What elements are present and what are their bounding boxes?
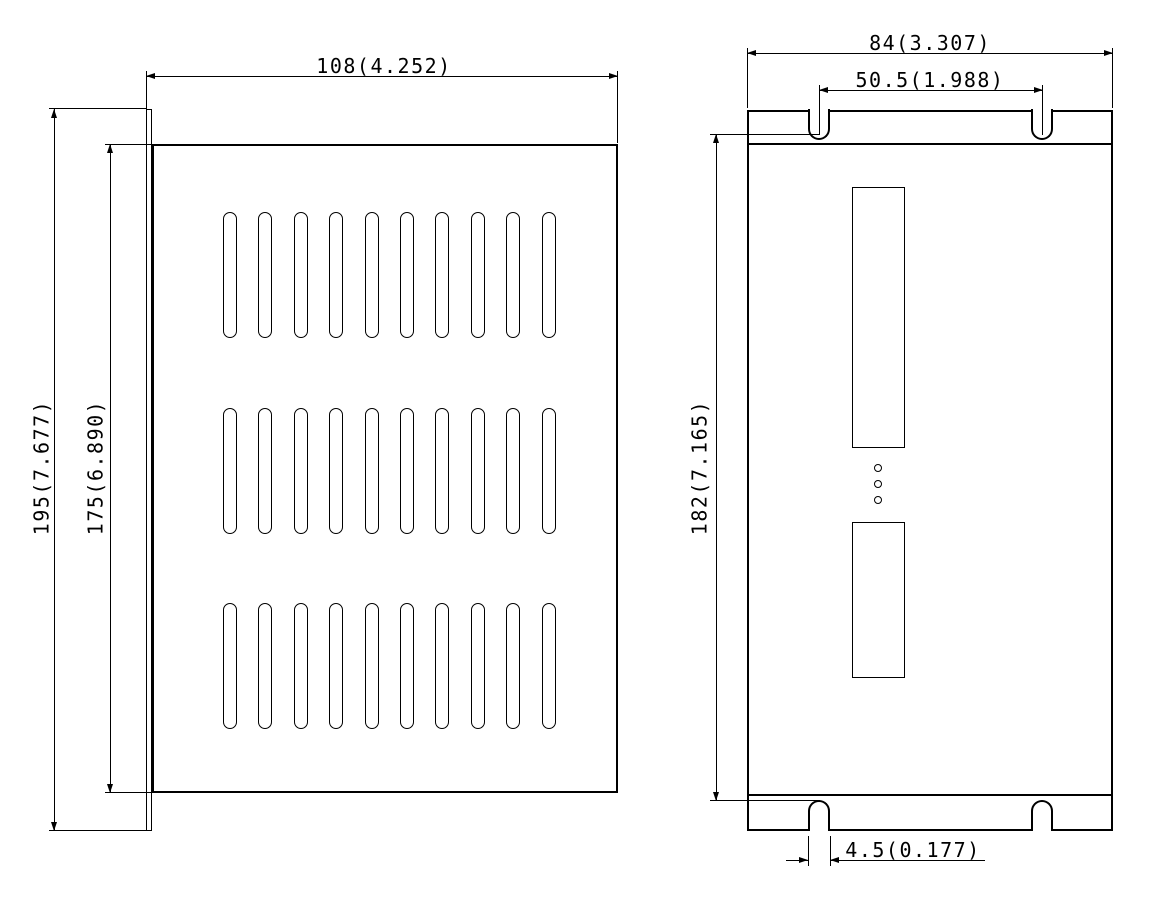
vent-slot [506, 603, 520, 729]
dim-arrow [713, 792, 719, 801]
dim-extension [617, 71, 618, 143]
vent-slot [365, 212, 379, 338]
dim-arrow [107, 144, 113, 153]
vent-slot [542, 212, 556, 338]
dim-arrow [51, 822, 57, 831]
dim-arrow [713, 134, 719, 143]
led-hole [874, 464, 882, 472]
dim-extension [710, 134, 820, 135]
vent-slot [223, 212, 237, 338]
vent-slot [329, 212, 343, 338]
mounting-notch [808, 800, 830, 831]
dim-arrow [799, 857, 808, 863]
dim-arrow [146, 73, 155, 79]
dim-arrow [1034, 87, 1043, 93]
dim-label-outer-height: 195(7.677) [33, 393, 52, 543]
vent-slot [294, 603, 308, 729]
connector-block [852, 522, 905, 678]
dim-arrow [1104, 50, 1113, 56]
dim-arrow [609, 73, 618, 79]
dim-label-body-height: 175(6.890) [87, 393, 106, 543]
dim-extension [747, 48, 748, 108]
vent-slot [400, 603, 414, 729]
dim-label-slot-width: 4.5(0.177) [838, 841, 988, 860]
vent-slot [542, 603, 556, 729]
vent-slot [471, 603, 485, 729]
vent-slot [365, 408, 379, 534]
dim-label-slot-spacing: 50.5(1.988) [845, 71, 1015, 90]
dim-line [110, 144, 111, 793]
vent-slot [258, 603, 272, 729]
vent-slot [400, 408, 414, 534]
vent-slot [506, 212, 520, 338]
vent-slot [435, 603, 449, 729]
bottom-flange-line [747, 794, 1113, 796]
dim-extension [49, 108, 146, 109]
dim-line [54, 109, 55, 831]
engineering-drawing: 108(4.252) 195(7.677) 175(6.890) [0, 0, 1167, 909]
dim-extension [808, 836, 809, 866]
dim-arrow [819, 87, 828, 93]
dim-arrow [51, 109, 57, 118]
vent-slot [258, 212, 272, 338]
vent-slot [471, 408, 485, 534]
dim-line [716, 134, 717, 801]
vent-slot [294, 408, 308, 534]
vent-slot [258, 408, 272, 534]
dim-extension [49, 830, 146, 831]
dim-arrow [107, 784, 113, 793]
vent-slot [506, 408, 520, 534]
dim-extension [1112, 48, 1113, 108]
driver-body-front [747, 110, 1113, 831]
dim-label-width: 108(4.252) [304, 57, 464, 76]
vent-slot [223, 603, 237, 729]
vent-slot [400, 212, 414, 338]
vent-slot [329, 603, 343, 729]
connector-block [852, 187, 905, 448]
vent-slot [542, 408, 556, 534]
dim-arrow [747, 50, 756, 56]
vent-slot [435, 212, 449, 338]
dim-extension [710, 800, 820, 801]
vent-slot [223, 408, 237, 534]
led-hole [874, 496, 882, 504]
vent-slot [329, 408, 343, 534]
dim-label-front-height: 182(7.165) [691, 393, 710, 543]
led-hole [874, 480, 882, 488]
top-flange-line [747, 143, 1113, 145]
dim-label-front-width: 84(3.307) [850, 34, 1010, 53]
vent-slot [471, 212, 485, 338]
vent-slot [294, 212, 308, 338]
vent-slot [365, 603, 379, 729]
vent-slot [435, 408, 449, 534]
mounting-notch [1031, 800, 1053, 831]
